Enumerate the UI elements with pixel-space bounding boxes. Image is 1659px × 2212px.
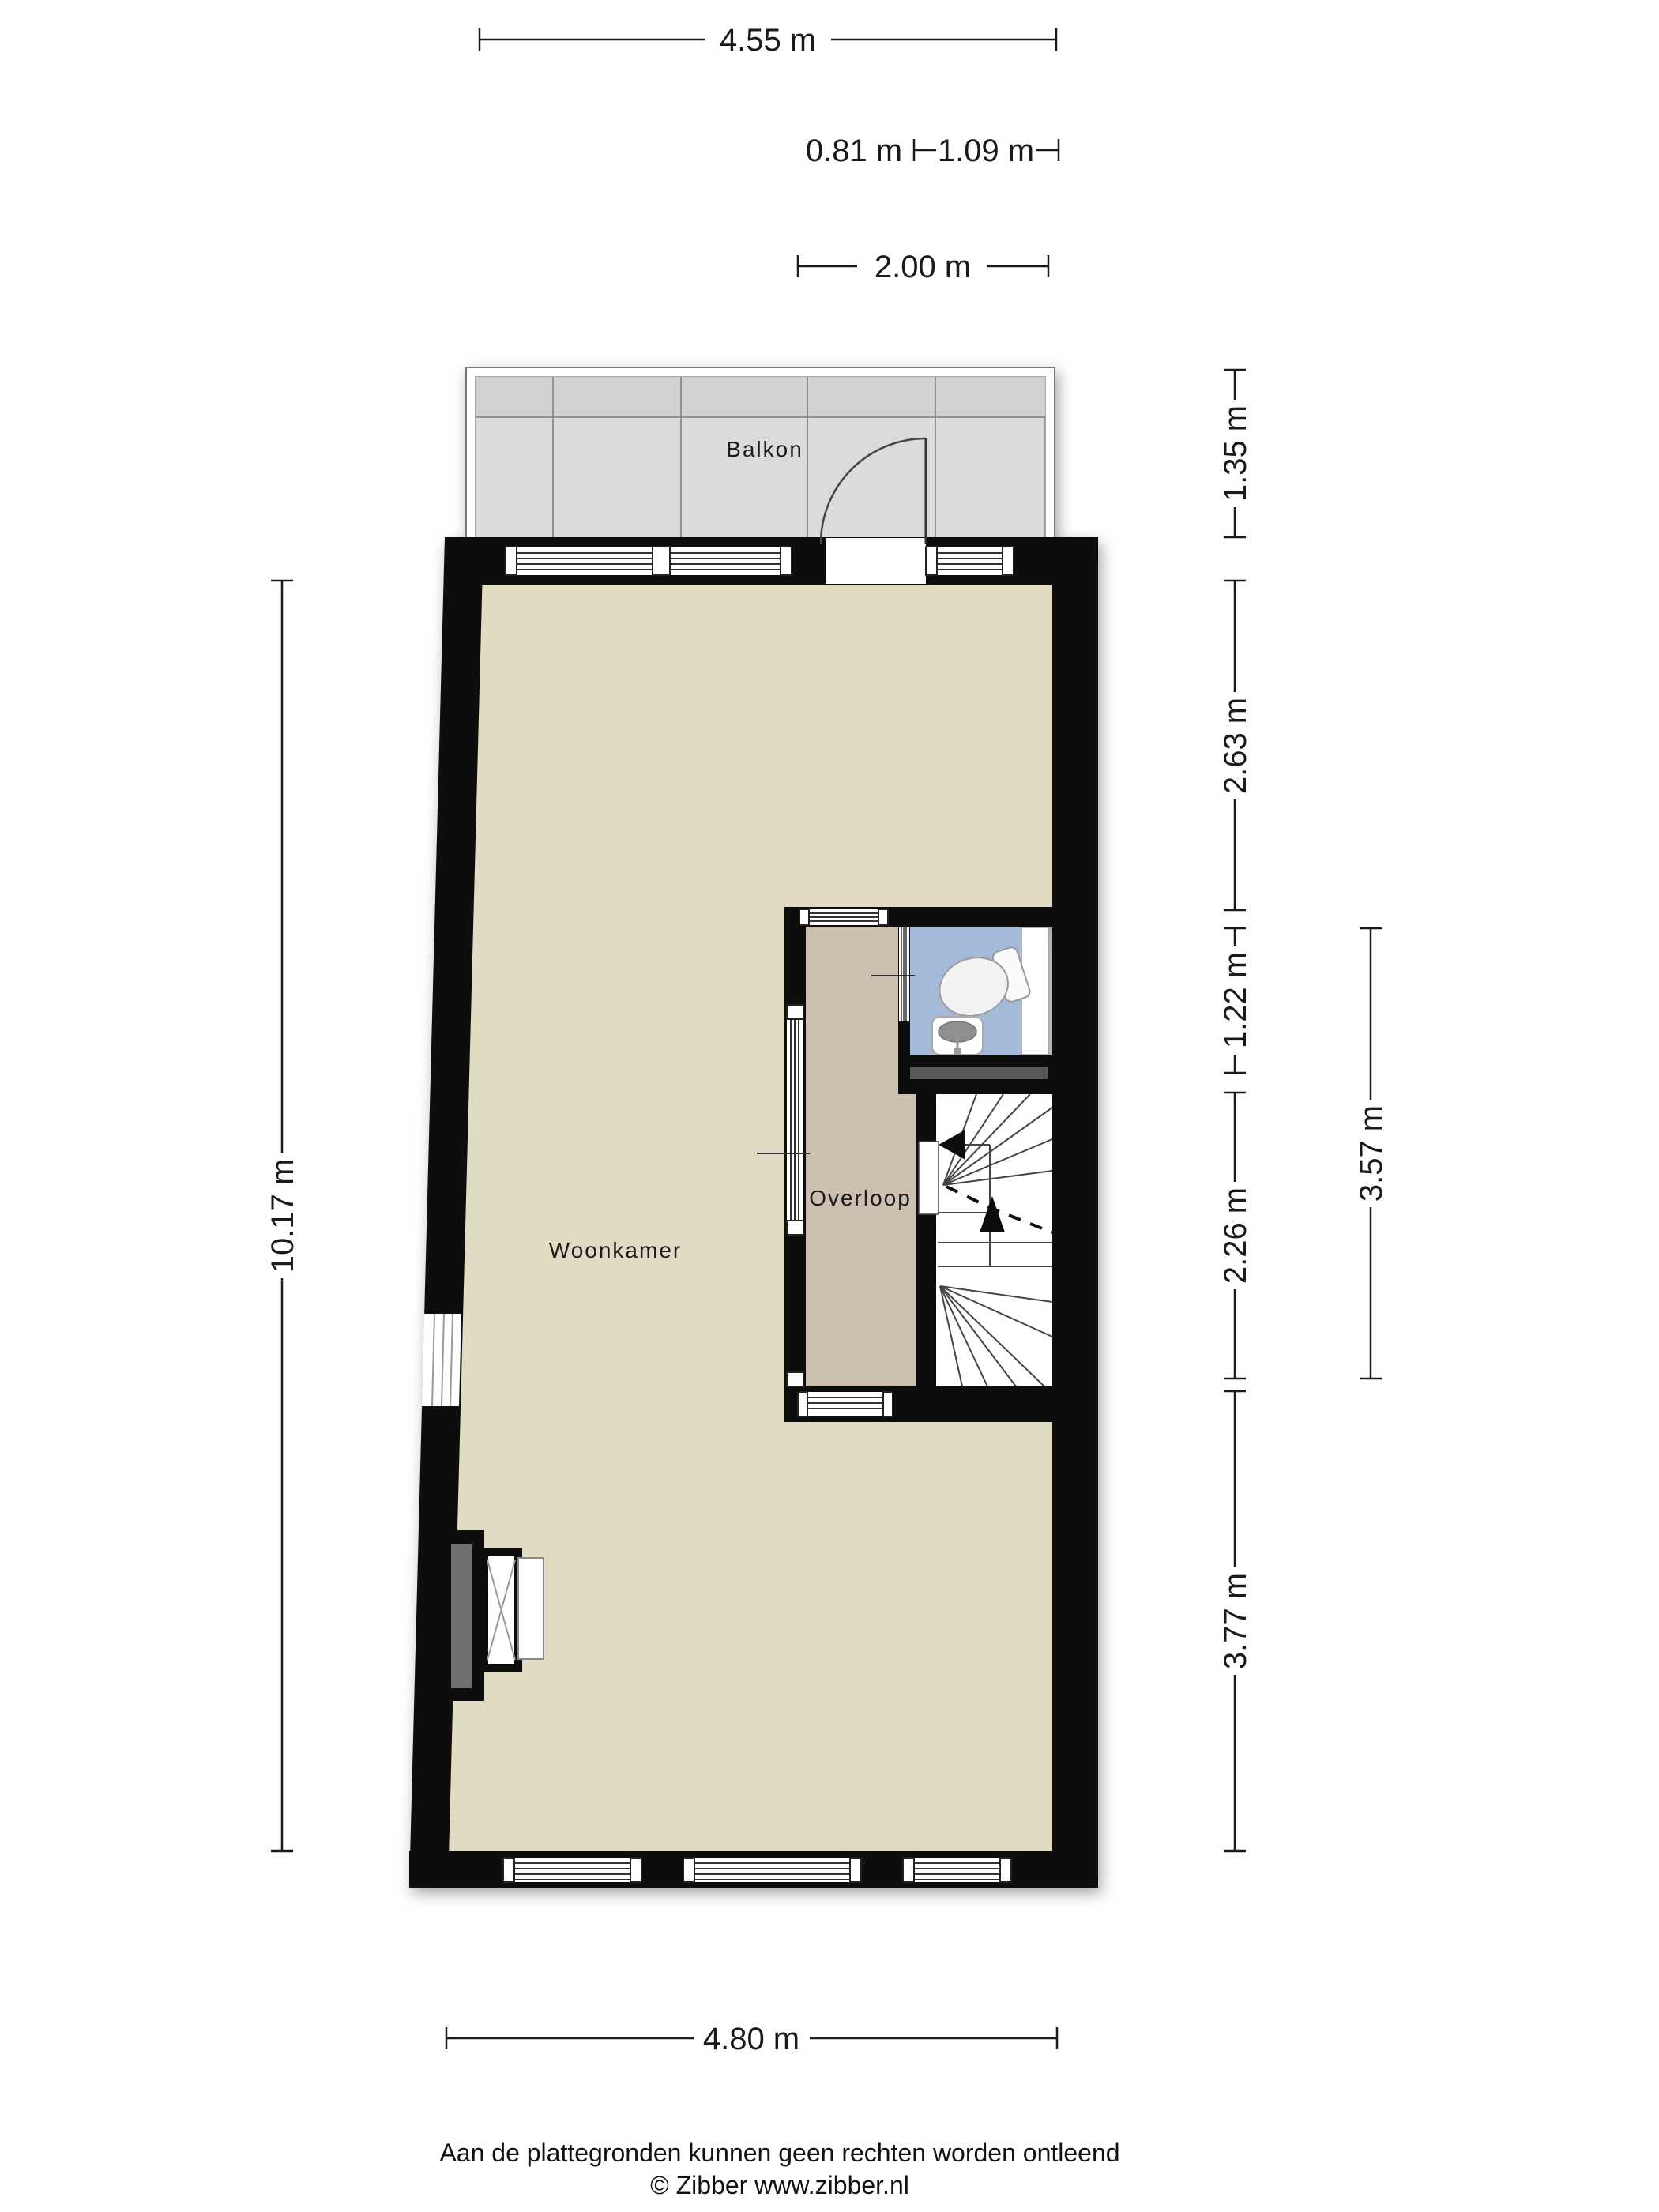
- window-jamb: [653, 547, 670, 575]
- dim-toilet-label: 1.22 m: [1218, 952, 1253, 1048]
- living-room-label: Woonkamer: [549, 1238, 682, 1262]
- dim-top-total-label: 4.55 m: [720, 23, 816, 58]
- sink-fixture: [932, 1017, 983, 1055]
- window-jamb: [1003, 547, 1014, 575]
- window-glazing: [903, 1858, 1011, 1882]
- dim-living-upper: 2.63 m: [1218, 581, 1253, 910]
- dim-living-lower: 3.77 m: [1218, 1391, 1253, 1851]
- right-wall: [1052, 537, 1098, 1888]
- window-jamb: [683, 1858, 694, 1882]
- window-glazing: [683, 1858, 861, 1882]
- dim-balcony-width: 2.00 m: [798, 250, 1048, 284]
- window-jamb: [781, 547, 792, 575]
- floorplan-canvas: Balkon Woonkamer Overloop 4.55 m 0.81 m …: [0, 0, 1659, 2212]
- footer-disclaimer: Aan de plattegronden kunnen geen rechten…: [439, 2139, 1119, 2167]
- window-jamb: [878, 909, 888, 925]
- floorplan-page: Balkon Woonkamer Overloop 4.55 m 0.81 m …: [0, 0, 1659, 2212]
- stair-opening: [919, 1142, 939, 1214]
- dim-block-label: 3.57 m: [1354, 1105, 1389, 1202]
- landing-label: Overloop: [809, 1186, 912, 1210]
- window-jamb: [787, 1005, 803, 1019]
- stairwell-left-wall: [916, 1094, 936, 1386]
- window-jamb: [883, 1392, 893, 1416]
- left-wall-window: [422, 1314, 461, 1406]
- dim-door-label: 0.81 m: [806, 134, 902, 168]
- bottom-wall-openings: [503, 1858, 1011, 1882]
- dim-window-label: 1.09 m: [938, 134, 1034, 168]
- floor-plan: Balkon Woonkamer Overloop: [409, 367, 1098, 1888]
- window-jamb: [798, 1392, 807, 1416]
- balcony-upper-band: [476, 377, 1045, 417]
- dim-balcony-width-label: 2.00 m: [875, 250, 971, 284]
- dim-top-total: 4.55 m: [480, 23, 1056, 58]
- dim-block: 3.57 m: [1354, 928, 1389, 1379]
- dim-stairs: 2.26 m: [1218, 1093, 1253, 1379]
- dim-living-lower-label: 3.77 m: [1218, 1573, 1253, 1669]
- window-jamb: [926, 547, 937, 575]
- footer-credit: © Zibber www.zibber.nl: [650, 2171, 909, 2199]
- window-jamb: [506, 547, 517, 575]
- dim-door-window: 0.81 m 1.09 m: [806, 134, 1059, 168]
- window-glazing: [807, 1392, 883, 1416]
- window-jamb: [799, 909, 809, 925]
- window-glazing: [506, 547, 792, 575]
- dim-left-total: 10.17 m: [265, 581, 300, 1851]
- dim-balcony-depth: 1.35 m: [1218, 370, 1253, 537]
- balcony-door-opening: [826, 538, 926, 584]
- balcony-label: Balkon: [726, 437, 803, 461]
- toilet-door: [899, 927, 909, 1021]
- radiator: [518, 1558, 544, 1659]
- window-jamb: [1000, 1858, 1011, 1882]
- window-jamb: [787, 1372, 803, 1386]
- dim-bottom-total: 4.80 m: [446, 2022, 1057, 2056]
- dim-stairs-label: 2.26 m: [1218, 1187, 1253, 1284]
- window-jamb: [630, 1858, 641, 1882]
- dim-balcony-depth-label: 1.35 m: [1218, 405, 1253, 502]
- dim-toilet: 1.22 m: [1218, 928, 1253, 1073]
- partition-gray-band: [910, 1066, 1048, 1079]
- dim-bottom-total-label: 4.80 m: [703, 2022, 799, 2056]
- window-glazing: [503, 1858, 641, 1882]
- dim-living-upper-label: 2.63 m: [1218, 698, 1253, 794]
- window-jamb: [787, 1221, 803, 1235]
- window-jamb: [903, 1858, 914, 1882]
- window-jamb: [503, 1858, 514, 1882]
- chimney-inset: [451, 1544, 472, 1688]
- dim-left-total-label: 10.17 m: [265, 1159, 300, 1273]
- window-jamb: [850, 1858, 861, 1882]
